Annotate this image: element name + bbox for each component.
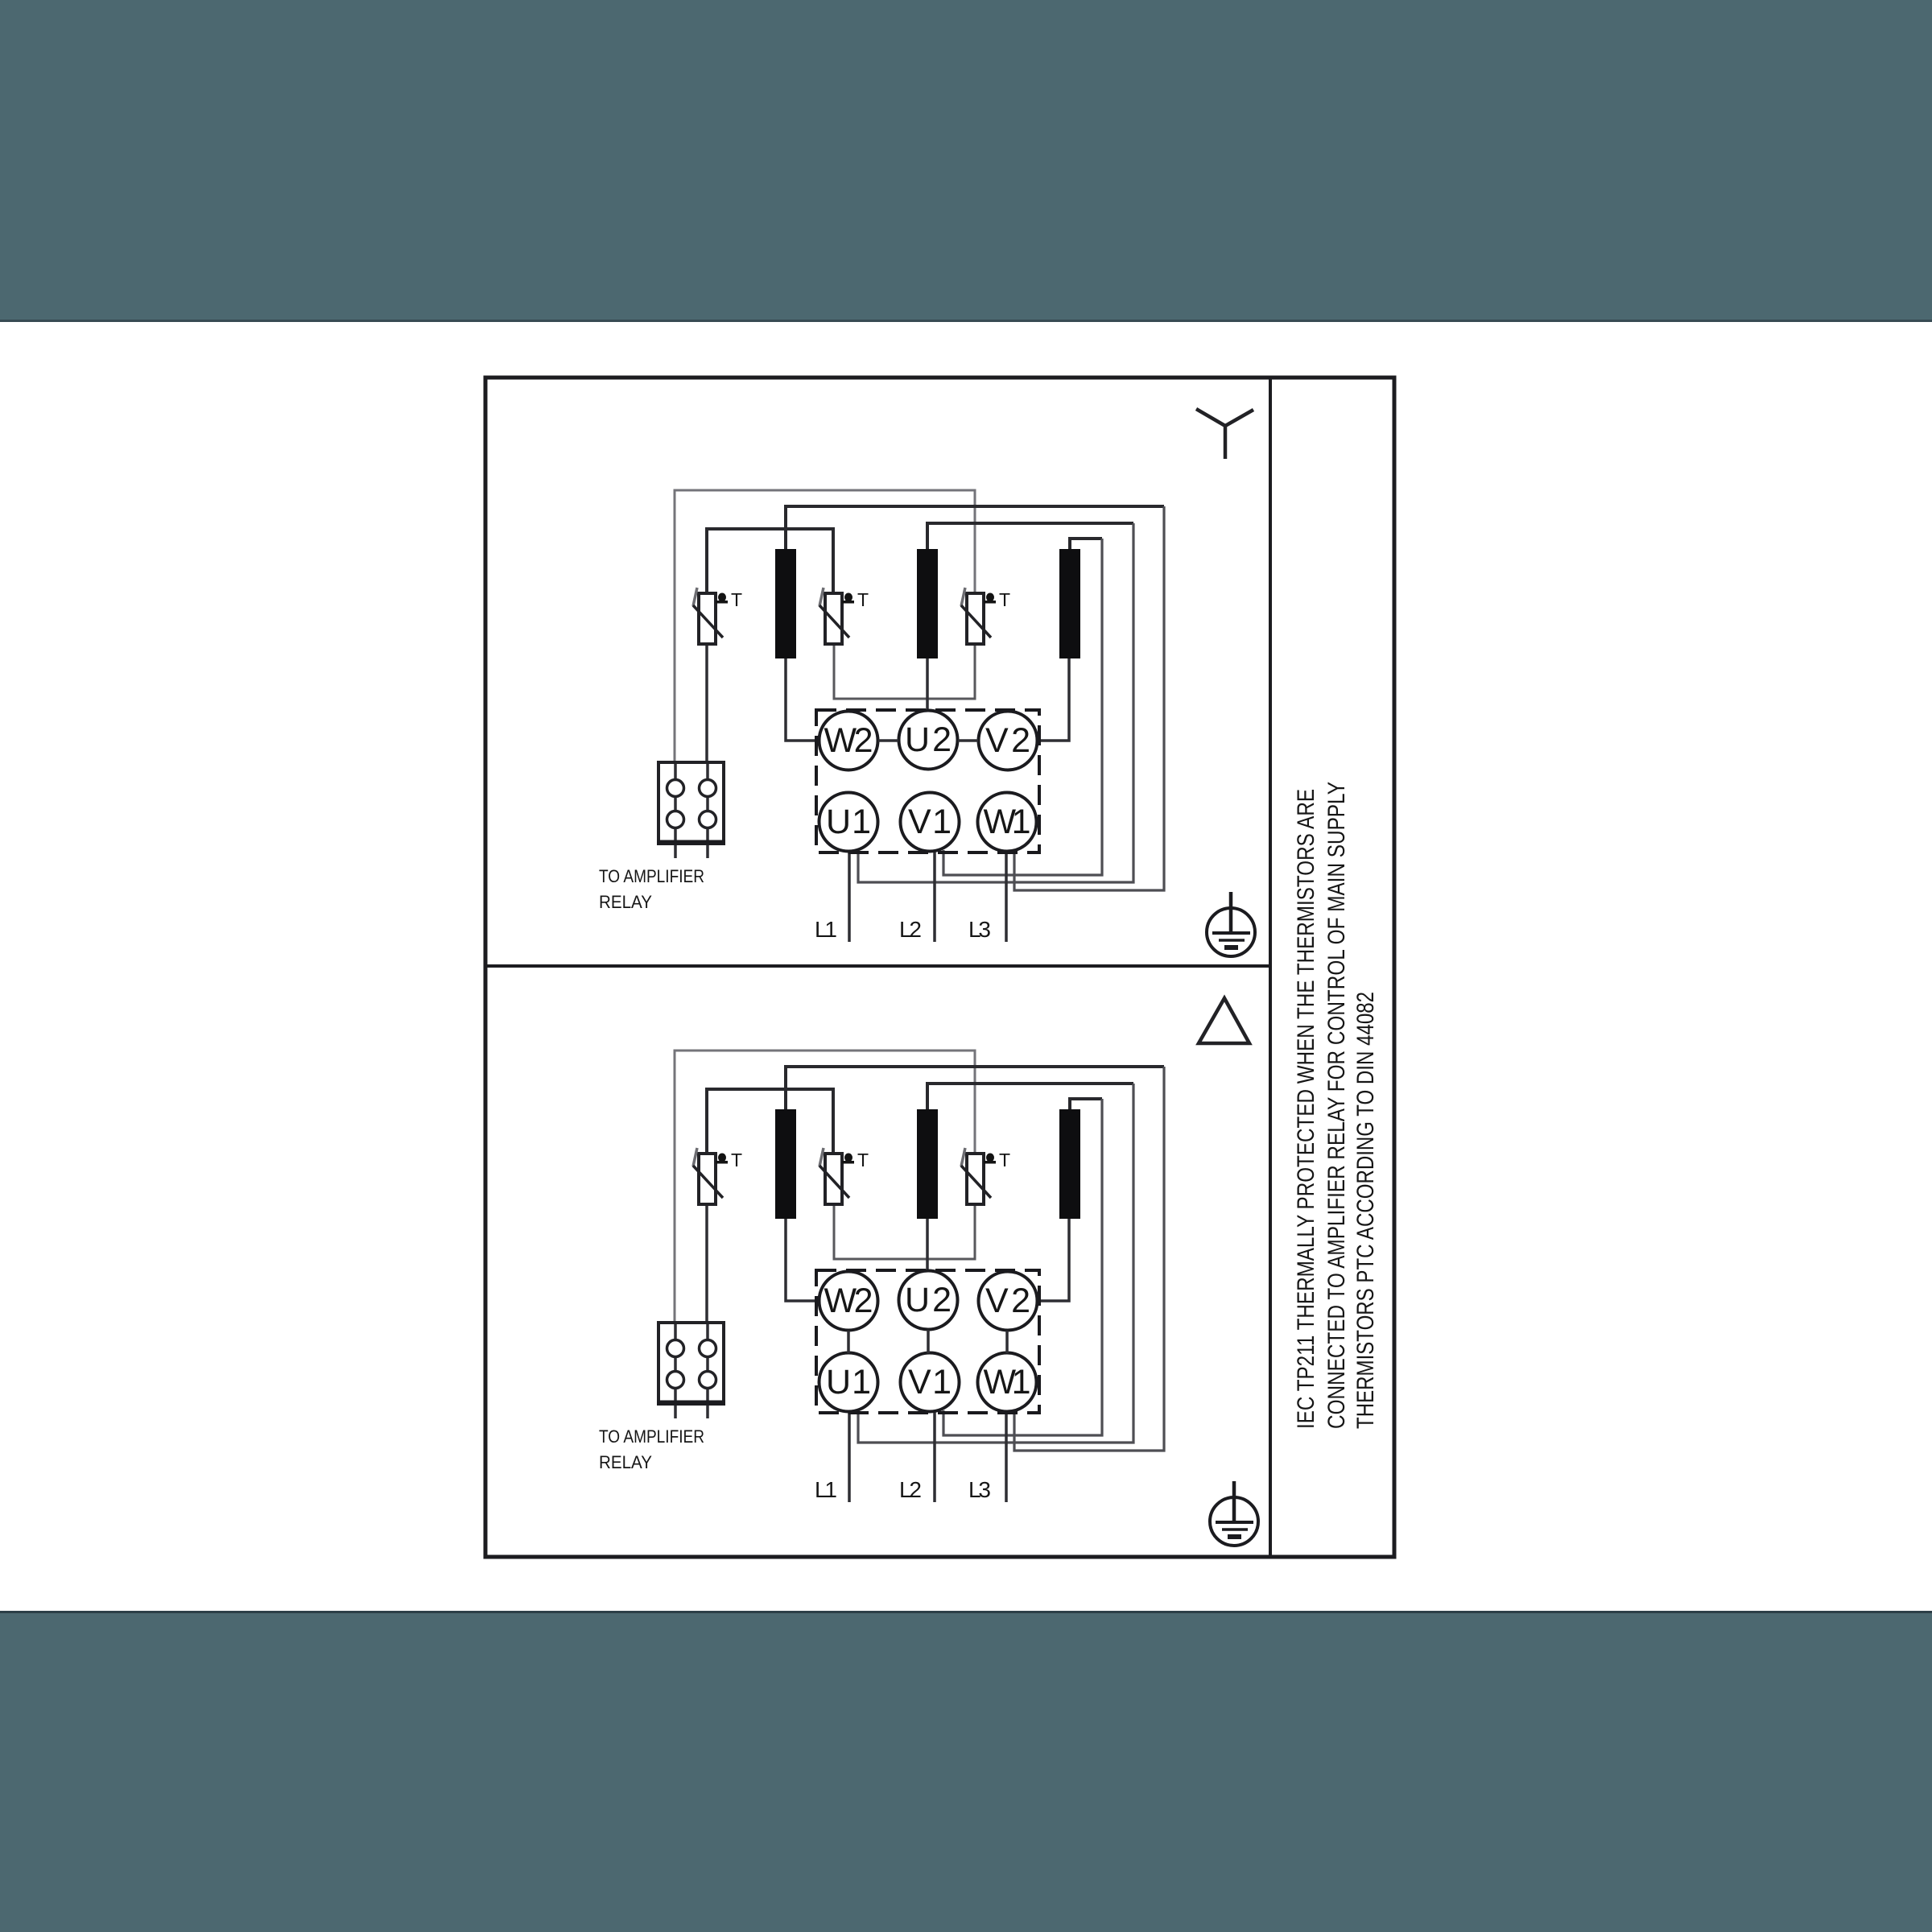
svg-text:CONNECTED TO AMPLIFIER RELAY F: CONNECTED TO AMPLIFIER RELAY FOR CONTROL… [1323,782,1350,1429]
svg-text:THERMISTORS PTC ACCORDING TO D: THERMISTORS PTC ACCORDING TO DIN 44082 [1352,992,1379,1429]
svg-text:IEC TP211 THERMALLY PROTECTED: IEC TP211 THERMALLY PROTECTED WHEN THE T… [1293,789,1319,1429]
